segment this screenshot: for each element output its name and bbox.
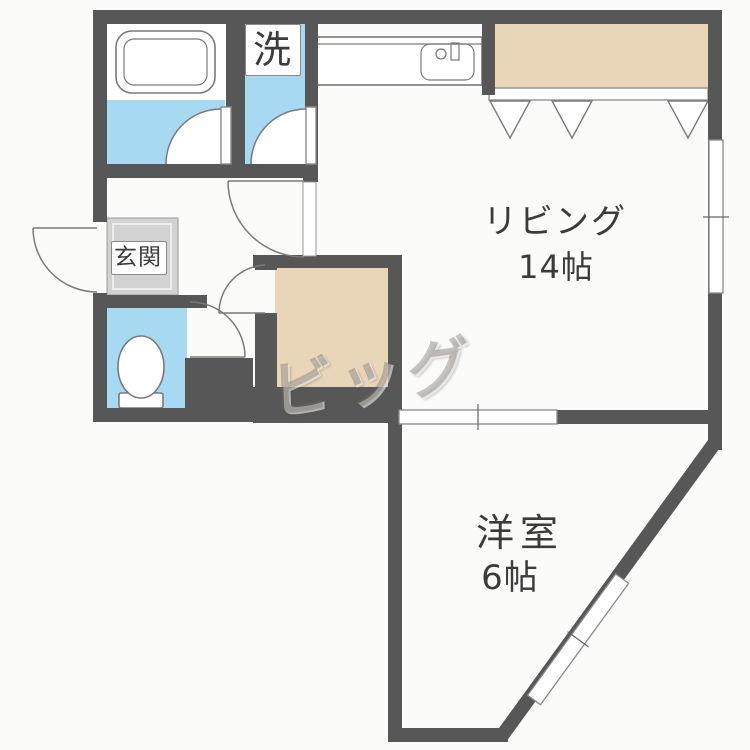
living-room-size: 14帖	[518, 251, 594, 283]
fold-mark-icon	[490, 101, 530, 138]
bathtub	[116, 31, 215, 93]
wall-hall-living-upper	[303, 164, 318, 182]
living-doorway	[303, 182, 316, 256]
wall-bath-bottom	[93, 164, 318, 178]
wall-toilet-right	[185, 358, 253, 408]
western-room-size: 6帖	[481, 561, 539, 595]
wall-left-upper	[93, 10, 107, 222]
wall-top	[93, 10, 722, 24]
bathroom-door-leaf	[221, 107, 231, 164]
fold-mark-icon	[552, 101, 592, 138]
living-room-label: リビング	[483, 205, 627, 239]
living-door-arc	[228, 181, 304, 257]
floor-plan: リビング 14帖 洋室 6帖 洗 玄関 ビッグ	[0, 0, 750, 750]
wall-closet-left-upper	[255, 255, 277, 270]
closet-door-arc	[219, 265, 265, 313]
laundry-label: 洗	[253, 31, 291, 69]
toilet-door-arc	[190, 302, 245, 357]
wall-west-bottom	[388, 728, 508, 742]
entrance-door-arc	[33, 228, 97, 292]
entrance-label: 玄関	[114, 247, 162, 270]
fold-mark-icon	[668, 101, 708, 138]
western-room-label: 洋室	[476, 514, 564, 552]
west-window-group	[523, 571, 632, 708]
wall-left-lower	[93, 293, 107, 422]
laundry-door-leaf	[306, 107, 316, 164]
wall-kitchen-closet	[482, 10, 495, 95]
toilet-bowl	[118, 336, 164, 398]
closet-top-floor	[489, 24, 708, 88]
wall-toilet-top	[93, 295, 207, 308]
closet-folding-door-track	[489, 88, 708, 100]
wall-living-west	[557, 410, 708, 424]
